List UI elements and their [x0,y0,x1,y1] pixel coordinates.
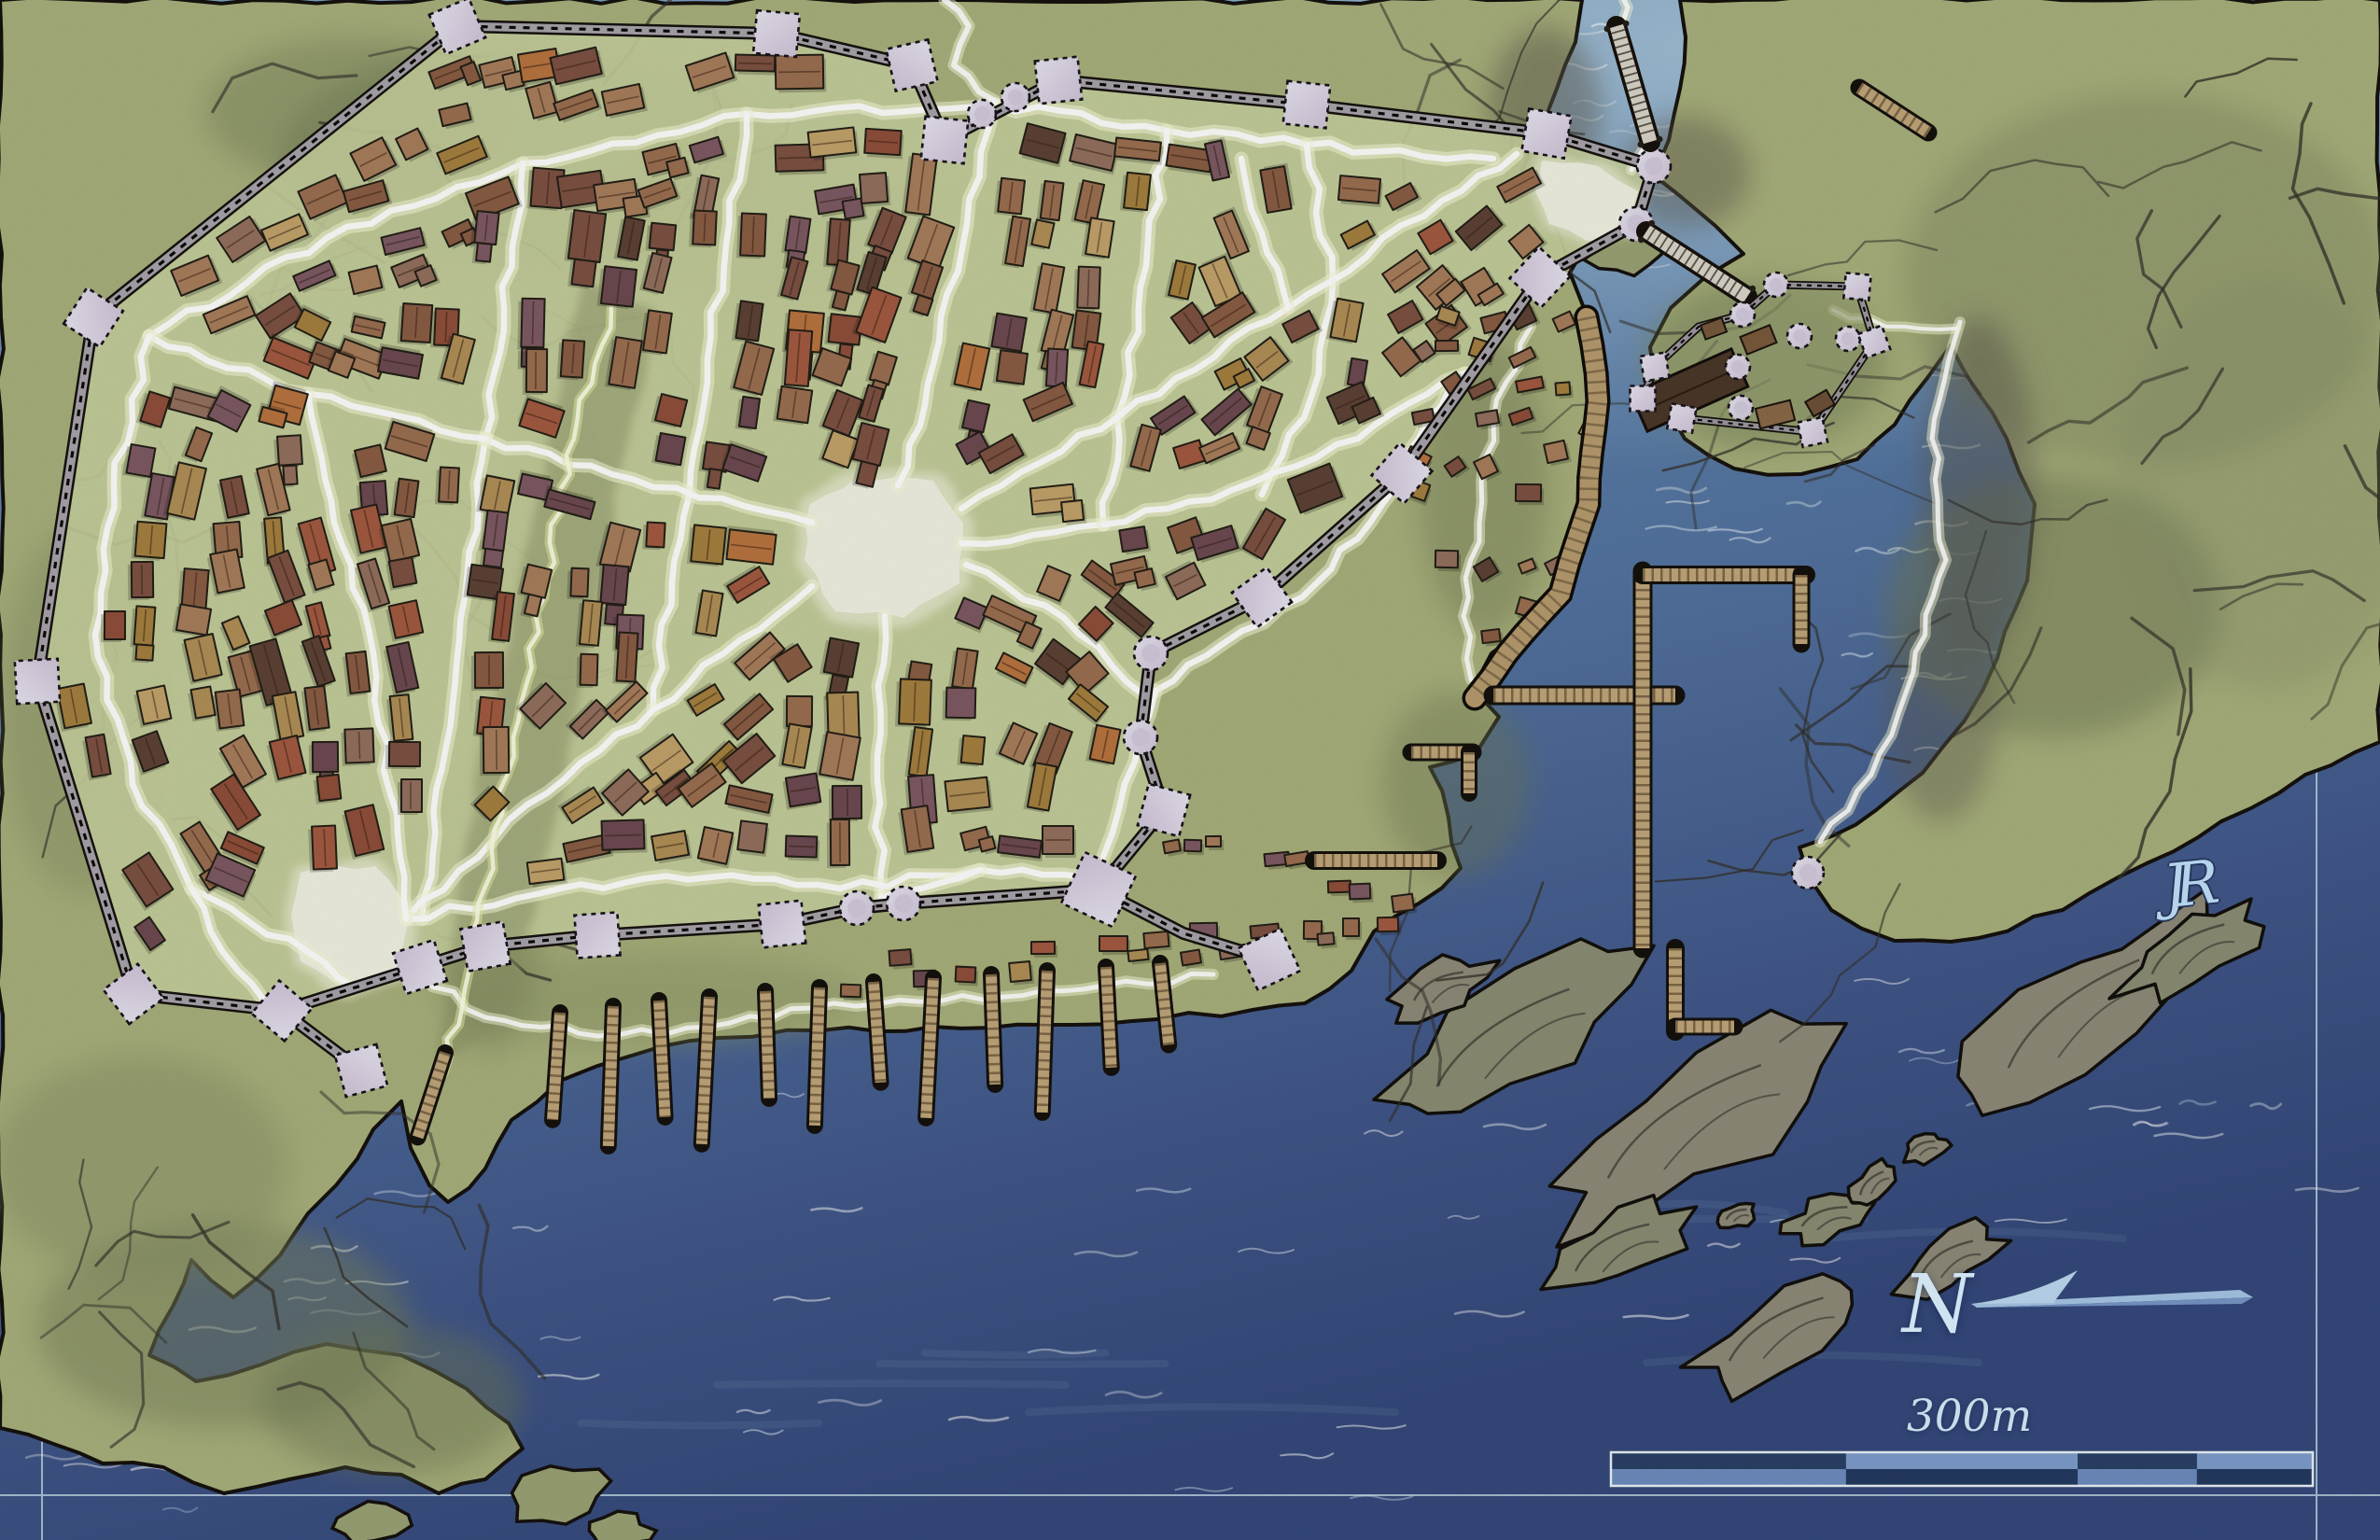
fantasy-city-map: N 300m JR [0,0,2380,1540]
paper-texture [0,0,2380,1540]
